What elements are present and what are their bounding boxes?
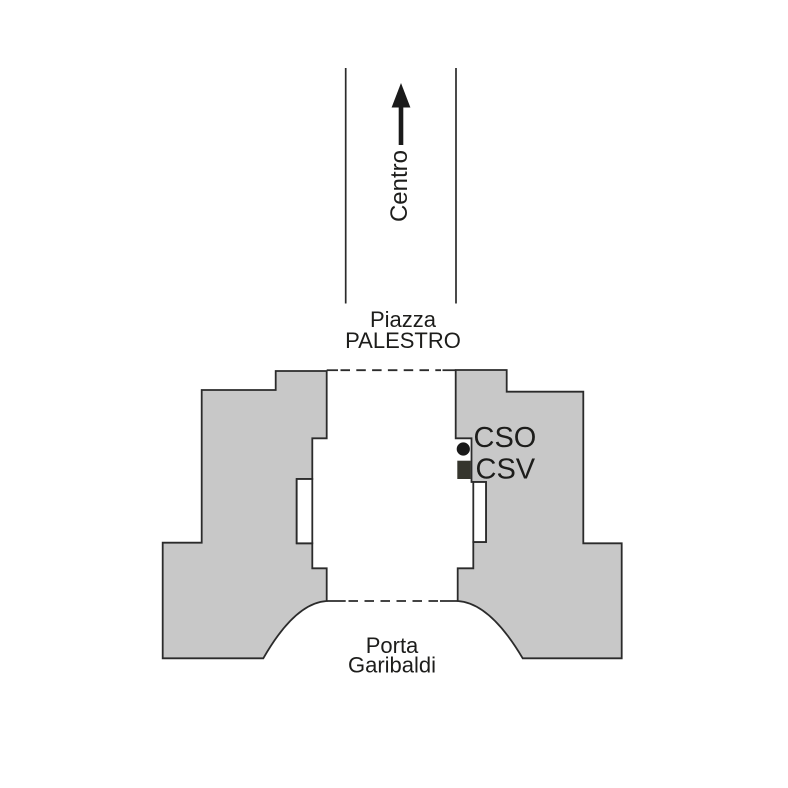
csv-marker-square-icon	[457, 461, 470, 479]
building-annex-right	[473, 482, 486, 542]
map-drawing: Centro Piazza PALESTRO CSO CSV	[0, 0, 788, 788]
cso-marker-dot-icon	[457, 442, 470, 455]
up-arrow-icon	[392, 83, 411, 145]
gate-label-line2: Garibaldi	[348, 653, 436, 678]
building-annex-left	[297, 479, 313, 543]
arrow-shaft	[399, 103, 404, 145]
street-map: Centro Piazza PALESTRO CSO CSV	[0, 0, 788, 788]
csv-marker-label: CSV	[476, 454, 536, 486]
centro-direction-label: Centro	[386, 150, 413, 222]
piazza-label-line2: PALESTRO	[345, 328, 461, 353]
arrow-head	[392, 83, 411, 108]
cso-marker-label: CSO	[474, 422, 537, 454]
